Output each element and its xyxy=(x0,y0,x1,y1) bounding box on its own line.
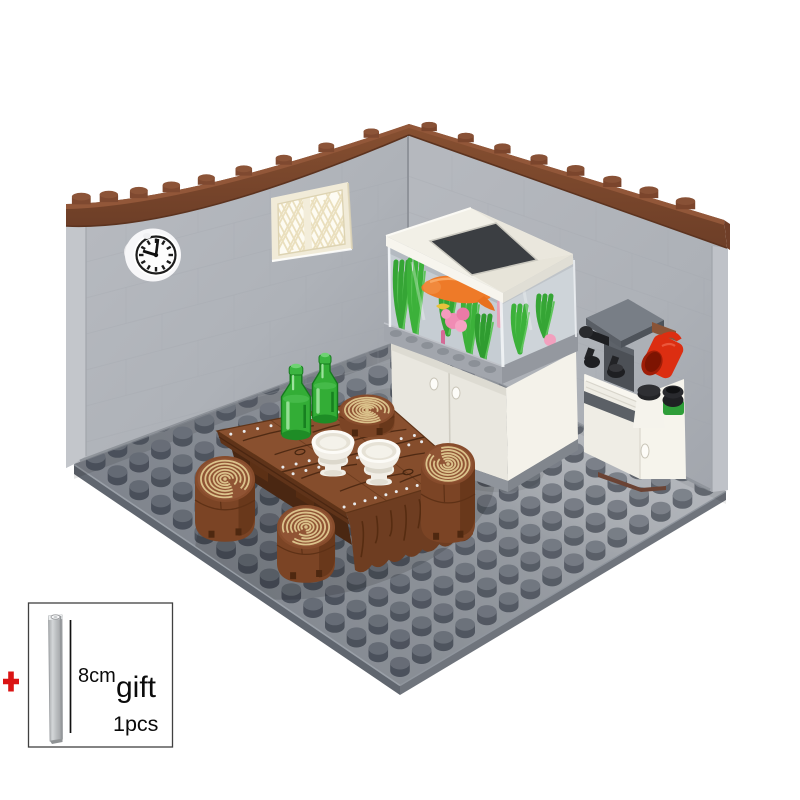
svg-text:8cm: 8cm xyxy=(78,665,116,687)
svg-text:gift: gift xyxy=(116,671,157,704)
svg-text:1pcs: 1pcs xyxy=(113,712,158,736)
